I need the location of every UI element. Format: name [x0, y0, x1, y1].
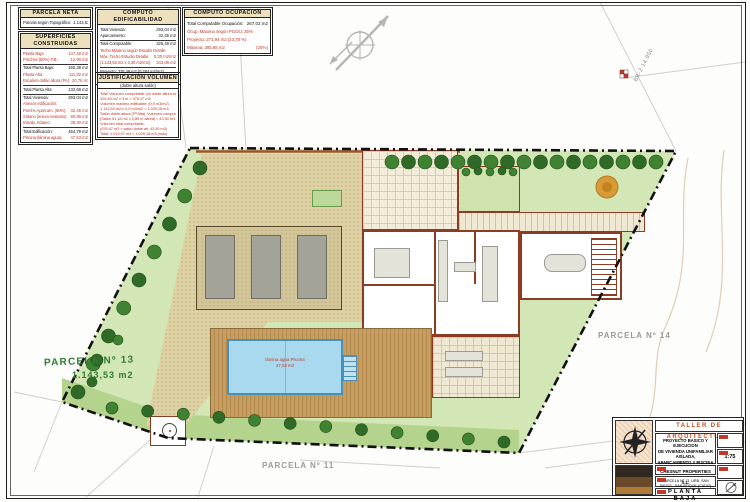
field-chip: [657, 478, 666, 482]
table-row: Parcela según Topográfico:1.143,53 m2: [23, 20, 88, 26]
table-title: COMPUTO OCUPACION: [185, 10, 270, 18]
parcel-11-label: PARCELA Nº 11: [262, 461, 334, 470]
table-rows: Planta Baja:147,48 m2Porches (50%) P.B.:…: [21, 49, 90, 142]
row-label: Instala. Sótano:: [23, 120, 51, 126]
scale-value: 1:75: [724, 454, 735, 460]
table-computo-ocupacion: COMPUTO OCUPACION Total Computable Ocupa…: [184, 9, 271, 54]
table-row: Aparcamiento:32,45 m2: [100, 33, 176, 39]
north-box: [717, 480, 743, 495]
row-value: 132,68 m2: [68, 87, 88, 93]
table-title: COMPUTO EDIFICABILIDAD: [98, 10, 178, 25]
site-location: PARCELA Nº 13, URB. SAN DIEGO - SAN ROQU…: [655, 476, 716, 487]
row-label: Total Computable Ocupación:: [187, 20, 243, 28]
compass-logo-icon: [617, 422, 653, 464]
row-value: 293,04 m2: [68, 95, 88, 101]
table-title: JUSTIFICACION VOLUMEN: [98, 75, 178, 83]
table-row: Escalera doble altura (PA):20,76 m2: [23, 78, 88, 84]
table-row: Instala. Sótano:38,30 m2: [23, 120, 88, 126]
table-rows: Parcela según Topográfico:1.143,53 m2: [21, 18, 90, 27]
table-row: Ocup. Máxima según PGOU: 25%: [187, 28, 268, 36]
row-value: 47,53 m2: [71, 135, 88, 141]
plan-number-box: [717, 465, 743, 479]
row-label: Ocup. Máxima según PGOU: 25%: [187, 28, 253, 36]
table-row: Total Planta Baja:160,38 m2: [23, 64, 88, 72]
row-value: 343,06 m2: [156, 60, 176, 66]
field-chip: [657, 467, 666, 471]
client-name: CHESNUT PROPERTIES S.L.: [655, 465, 716, 475]
table-parcela-neta: PARCELA NETA Parcela según Topográfico:1…: [20, 9, 91, 28]
project-line: DE VIVIENDA UNIFAMILIAR AISLADA,: [656, 449, 715, 460]
parcel-14-label: PARCELA Nº 14: [598, 331, 671, 340]
field-chip: [719, 435, 728, 439]
table-title: PARCELA NETA: [21, 10, 90, 18]
field-chip: [719, 467, 728, 471]
row-value: 1.143,53 m2: [73, 20, 88, 26]
row-value: 32,45 m2: [159, 33, 176, 39]
row-label: Aparcamiento:: [100, 33, 126, 39]
studio-logo: [615, 420, 653, 464]
row-label: Escalera doble altura (PA):: [23, 78, 70, 84]
table-row: Total Vivienda:293,04 m2: [23, 94, 88, 102]
row-label: Total Planta Alta:: [23, 87, 52, 93]
row-value: 267,03 m2: [247, 20, 268, 28]
table-rows: Total Computable Ocupación:267,03 m2Ocup…: [185, 18, 270, 53]
table-row: Total Edificación:454,79 m2: [23, 127, 88, 135]
site-photo-thumbnail: [615, 465, 653, 495]
mini-compass-icon: [719, 481, 743, 494]
table-row: Proyecto: 271,94 m2 (23,78 %): [187, 36, 268, 44]
project-line: PROYECTO BASICO Y EJECUCION: [656, 438, 715, 449]
row-value: 20,76 m2: [72, 78, 88, 84]
table-row: Piscina (lámina agua):47,53 m2: [23, 135, 88, 141]
field-chip: [657, 490, 666, 494]
row-label: Parcela según Topográfico:: [23, 20, 71, 26]
field-chip: [719, 451, 728, 455]
studio-name: TALLER DE ARQUITECTURA: [655, 420, 743, 432]
row-value: 38,30 m2: [71, 120, 88, 126]
table-row: Total Computable:325,49 m2: [100, 40, 176, 48]
table-justificacion-volumen: JUSTIFICACION VOLUMEN (doble altura saló…: [97, 74, 179, 138]
table-line: Total Volumen computable (no doble altur…: [100, 91, 176, 96]
table-title: SUPERFICIES CONSTRUIDAS: [21, 34, 90, 49]
table-rows: Total Volumen computable (no doble altur…: [98, 89, 178, 137]
title-block: TALLER DE ARQUITECTURA PROYECTO BASICO Y…: [612, 417, 744, 496]
table-line: Total: 1.019,97 m3 < 1.029,18 m3 (máx): [100, 131, 176, 136]
row-value: 12,90 m2: [71, 57, 88, 63]
table-row: Porches (50%) P.B.:12,90 m2: [23, 57, 88, 63]
table-superficies: SUPERFICIES CONSTRUIDAS Planta Baja:147,…: [20, 33, 91, 143]
location-text: PARCELA Nº 13, URB. SAN DIEGO - SAN ROQU…: [660, 479, 712, 488]
drawing-title: PLANTA BAJA: [655, 488, 716, 496]
row-label: Porches (50%) P.B.:: [23, 57, 59, 63]
date-box: [717, 433, 743, 448]
project-title: PROYECTO BASICO Y EJECUCION DE VIVIENDA …: [655, 433, 716, 464]
row-label: Máxima: 285,88 m2: [187, 44, 225, 52]
table-row: Máxima: 285,88 m2(25%): [187, 44, 268, 52]
row-label: Piscina (lámina agua):: [23, 135, 62, 141]
row-value: (25%): [256, 44, 268, 52]
row-label: Proyecto: 271,94 m2 (23,78 %): [187, 36, 246, 44]
scale-box: 1:75: [717, 449, 743, 464]
parcel-13-area: 1.143,53 m2: [72, 370, 134, 380]
drawing-sheet: lámina agua Piscina 47,53 m2: [0, 0, 750, 502]
table-row: Total Planta Alta:132,68 m2: [23, 85, 88, 93]
table-row: Total Computable Ocupación:267,03 m2: [187, 20, 268, 28]
row-label: (1.143,53 m2 x 0,30 m2/m2):: [100, 60, 151, 66]
table-computo-edificabilidad: COMPUTO EDIFICABILIDAD Total Vivienda:29…: [97, 9, 179, 83]
table-row: (1.143,53 m2 x 0,30 m2/m2):343,06 m2: [100, 60, 176, 66]
